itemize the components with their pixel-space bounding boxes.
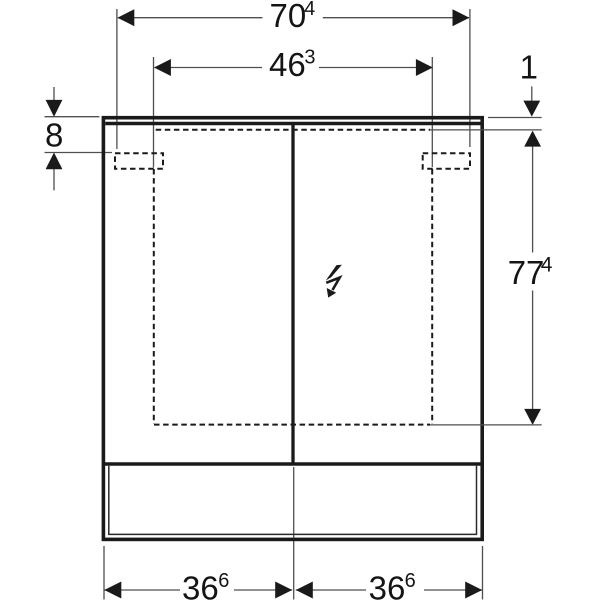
svg-text:36: 36 bbox=[182, 569, 219, 600]
svg-text:6: 6 bbox=[218, 570, 229, 592]
svg-text:3: 3 bbox=[304, 47, 315, 69]
svg-text:46: 46 bbox=[269, 46, 306, 83]
svg-text:70: 70 bbox=[270, 0, 307, 34]
svg-text:4: 4 bbox=[304, 0, 315, 20]
svg-text:6: 6 bbox=[405, 570, 416, 592]
svg-text:4: 4 bbox=[541, 254, 553, 277]
svg-text:77: 77 bbox=[508, 254, 545, 291]
svg-text:36: 36 bbox=[369, 569, 406, 600]
svg-text:1: 1 bbox=[520, 49, 538, 86]
svg-text:8: 8 bbox=[45, 116, 63, 153]
